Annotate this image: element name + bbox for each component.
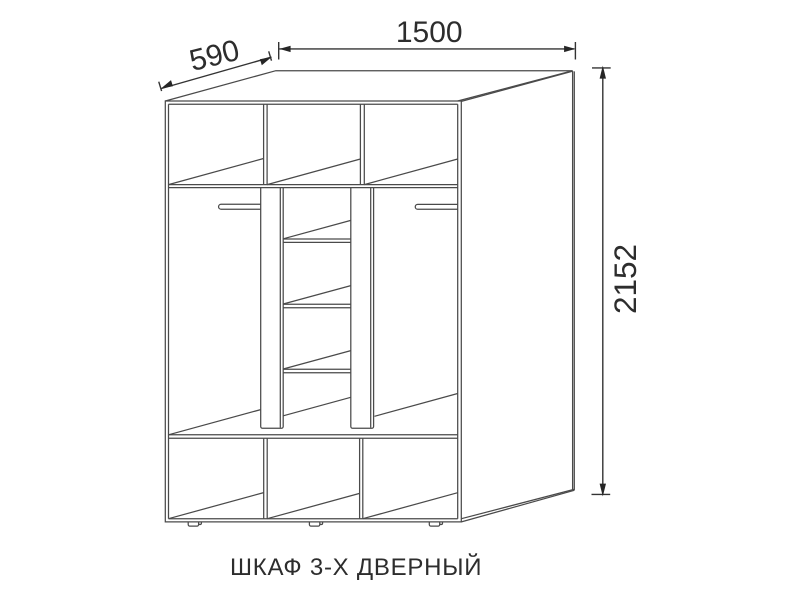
svg-text:ШКАФ 3-Х ДВЕРНЫЙ: ШКАФ 3-Х ДВЕРНЫЙ: [230, 553, 482, 581]
svg-text:1500: 1500: [396, 16, 463, 49]
svg-text:2152: 2152: [607, 244, 643, 314]
